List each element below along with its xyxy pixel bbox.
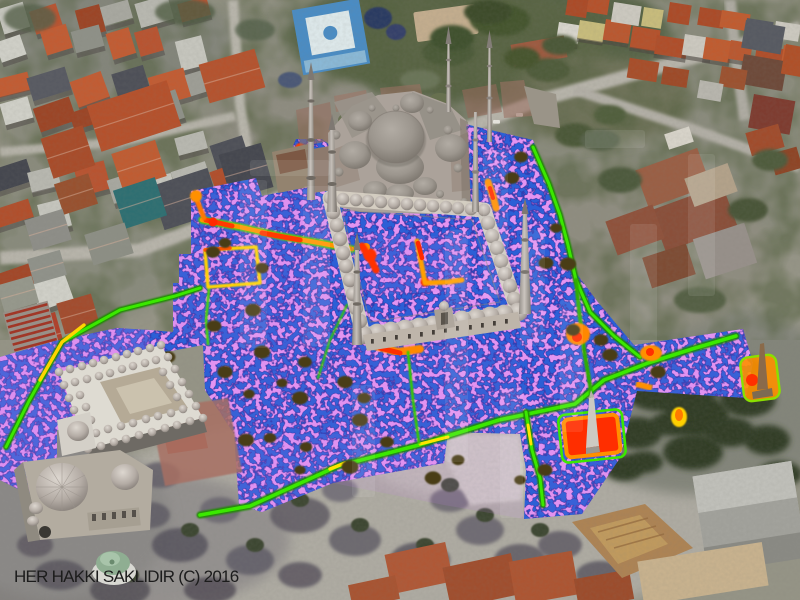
svg-text:HER HAKKI SAKLIDIR (C) 2016: HER HAKKI SAKLIDIR (C) 2016	[14, 567, 239, 586]
